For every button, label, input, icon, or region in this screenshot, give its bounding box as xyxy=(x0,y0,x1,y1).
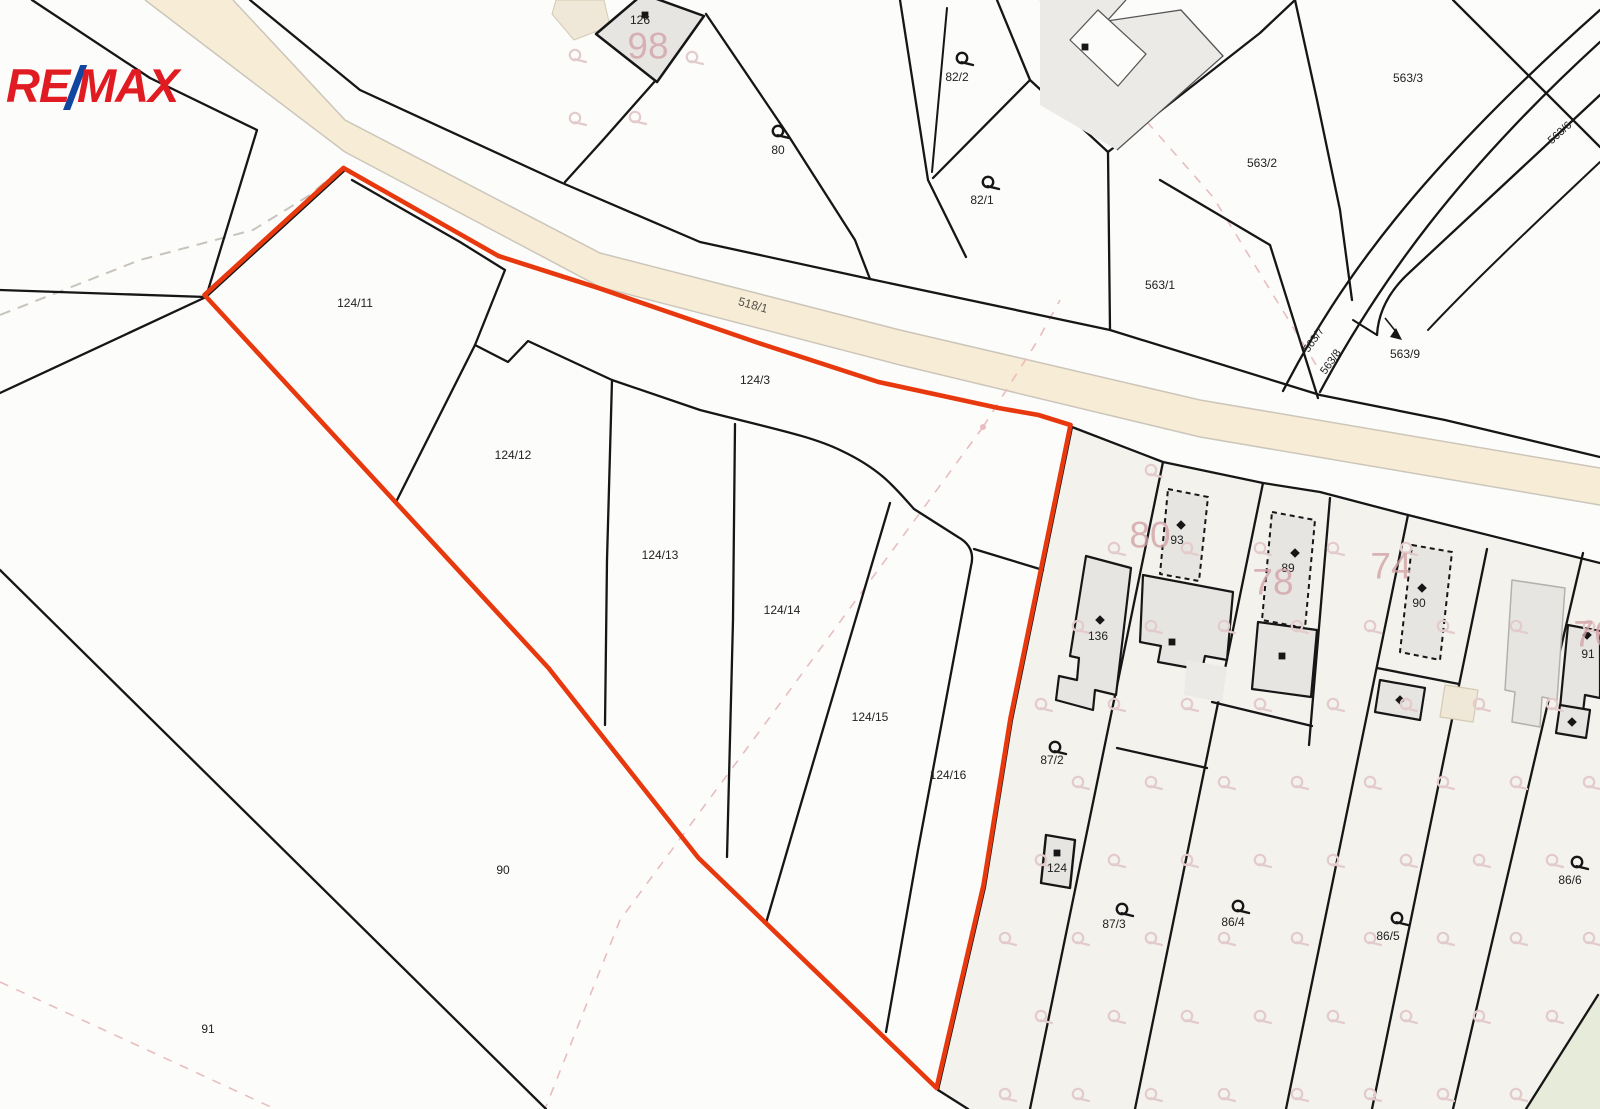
building-square-mark xyxy=(1054,850,1061,857)
remax-logo-re: RE xyxy=(6,59,69,112)
landuse-icon-faint-tail xyxy=(692,61,704,64)
parcel-label: 90 xyxy=(496,863,510,877)
parcel-label: 563/9 xyxy=(1390,347,1420,361)
parcel-line xyxy=(932,8,947,172)
map-region-fills xyxy=(938,427,1600,1109)
house-number-label: 74 xyxy=(1370,546,1411,587)
house-number-label: 76 xyxy=(1573,614,1600,655)
map-viewport: 1268082/282/1563/2563/3563/1563/6563/756… xyxy=(0,0,1600,1109)
parcel-label: 136 xyxy=(1088,629,1108,643)
parcel-line xyxy=(352,180,505,502)
parcel-label: 91 xyxy=(201,1022,215,1036)
parcel-label: 124 xyxy=(1047,861,1067,875)
remax-logo: RE/MAX xyxy=(6,58,178,113)
parcel-label: 563/8 xyxy=(1318,347,1344,376)
parcel-line xyxy=(1160,180,1318,398)
parcel-label: 87/2 xyxy=(1040,753,1064,767)
building xyxy=(1184,660,1227,702)
parcel-line xyxy=(0,297,206,393)
parcel-line xyxy=(727,424,735,857)
parcel-line xyxy=(1453,0,1600,147)
road-surface xyxy=(145,0,1600,505)
parcel-line xyxy=(706,14,870,279)
landuse-icon-faint xyxy=(630,112,646,124)
building xyxy=(1040,0,1223,150)
road-edge xyxy=(145,0,1600,505)
building-square-mark xyxy=(1082,44,1089,51)
parcel-line xyxy=(974,549,1043,570)
landuse-icon-faint-tail xyxy=(575,122,587,125)
parcel-label: 563/1 xyxy=(1145,278,1175,292)
pink-survey-dot xyxy=(980,424,986,430)
parcel-line xyxy=(933,0,1030,178)
landuse-icon-faint xyxy=(570,50,586,62)
parcel-label: 87/3 xyxy=(1102,917,1126,931)
building xyxy=(1440,685,1478,722)
parcel-line xyxy=(475,341,972,1032)
parcel-line xyxy=(1295,0,1352,300)
parcel-line xyxy=(605,380,612,725)
parcel-label: 86/5 xyxy=(1376,929,1400,943)
parcel-label: 90 xyxy=(1412,596,1426,610)
parcel-label: 563/2 xyxy=(1247,156,1277,170)
parcel-label: 80 xyxy=(771,143,785,157)
parcel-label: 124/15 xyxy=(852,710,889,724)
parcel-label: 124/3 xyxy=(740,373,770,387)
road-518-1 xyxy=(145,0,1600,505)
highlighted-property-boundary xyxy=(205,168,1073,1090)
pink-dashed-line xyxy=(545,427,983,1109)
parcel-label: 86/4 xyxy=(1221,915,1245,929)
landuse-icon-tail xyxy=(988,186,1000,189)
boundary-underlay xyxy=(206,170,345,297)
house-number-label: 98 xyxy=(627,26,668,67)
building-square-mark xyxy=(1169,639,1176,646)
parcel-label: 124/16 xyxy=(930,768,967,782)
parcel-line xyxy=(1283,10,1600,391)
landuse-icon-faint xyxy=(687,52,703,64)
parcel-label: 82/2 xyxy=(945,70,969,84)
house-number-label: 80 xyxy=(1129,515,1170,556)
cadastral-map: 1268082/282/1563/2563/3563/1563/6563/756… xyxy=(0,0,1600,1109)
parcel-line xyxy=(1320,42,1600,392)
parcel-label: 86/6 xyxy=(1558,873,1582,887)
landuse-icon xyxy=(983,177,999,189)
parcel-line xyxy=(0,570,546,1109)
landuse-icon-faint xyxy=(570,113,586,125)
parcel-label: 82/1 xyxy=(970,193,994,207)
parcel-label: 93 xyxy=(1170,533,1184,547)
landuse-icon xyxy=(957,53,973,65)
parcel-line xyxy=(0,290,206,297)
highlight-red-outline xyxy=(205,168,1071,1088)
region-fill xyxy=(938,427,1600,1109)
parcel-line xyxy=(900,0,966,257)
landuse-icon-faint-tail xyxy=(635,121,647,124)
parcel-label: 124/11 xyxy=(337,296,373,310)
landuse-icon-tail xyxy=(962,62,974,65)
parcel-label: 124/13 xyxy=(642,548,679,562)
building-square-mark xyxy=(1279,653,1286,660)
parcel-label: 124/12 xyxy=(495,448,532,462)
parcel-line xyxy=(565,80,656,182)
parcel-label: 563/3 xyxy=(1393,71,1423,85)
parcel-label: 124/14 xyxy=(764,603,801,617)
reference-arrow-head xyxy=(1390,328,1402,340)
parcel-line xyxy=(1428,162,1600,330)
pink-dashed-line xyxy=(0,982,273,1108)
landuse-icon-faint-tail xyxy=(575,59,587,62)
house-number-label: 78 xyxy=(1252,562,1293,603)
parcel-label: 563/7 xyxy=(1301,325,1327,354)
remax-logo-max: MAX xyxy=(77,59,178,112)
